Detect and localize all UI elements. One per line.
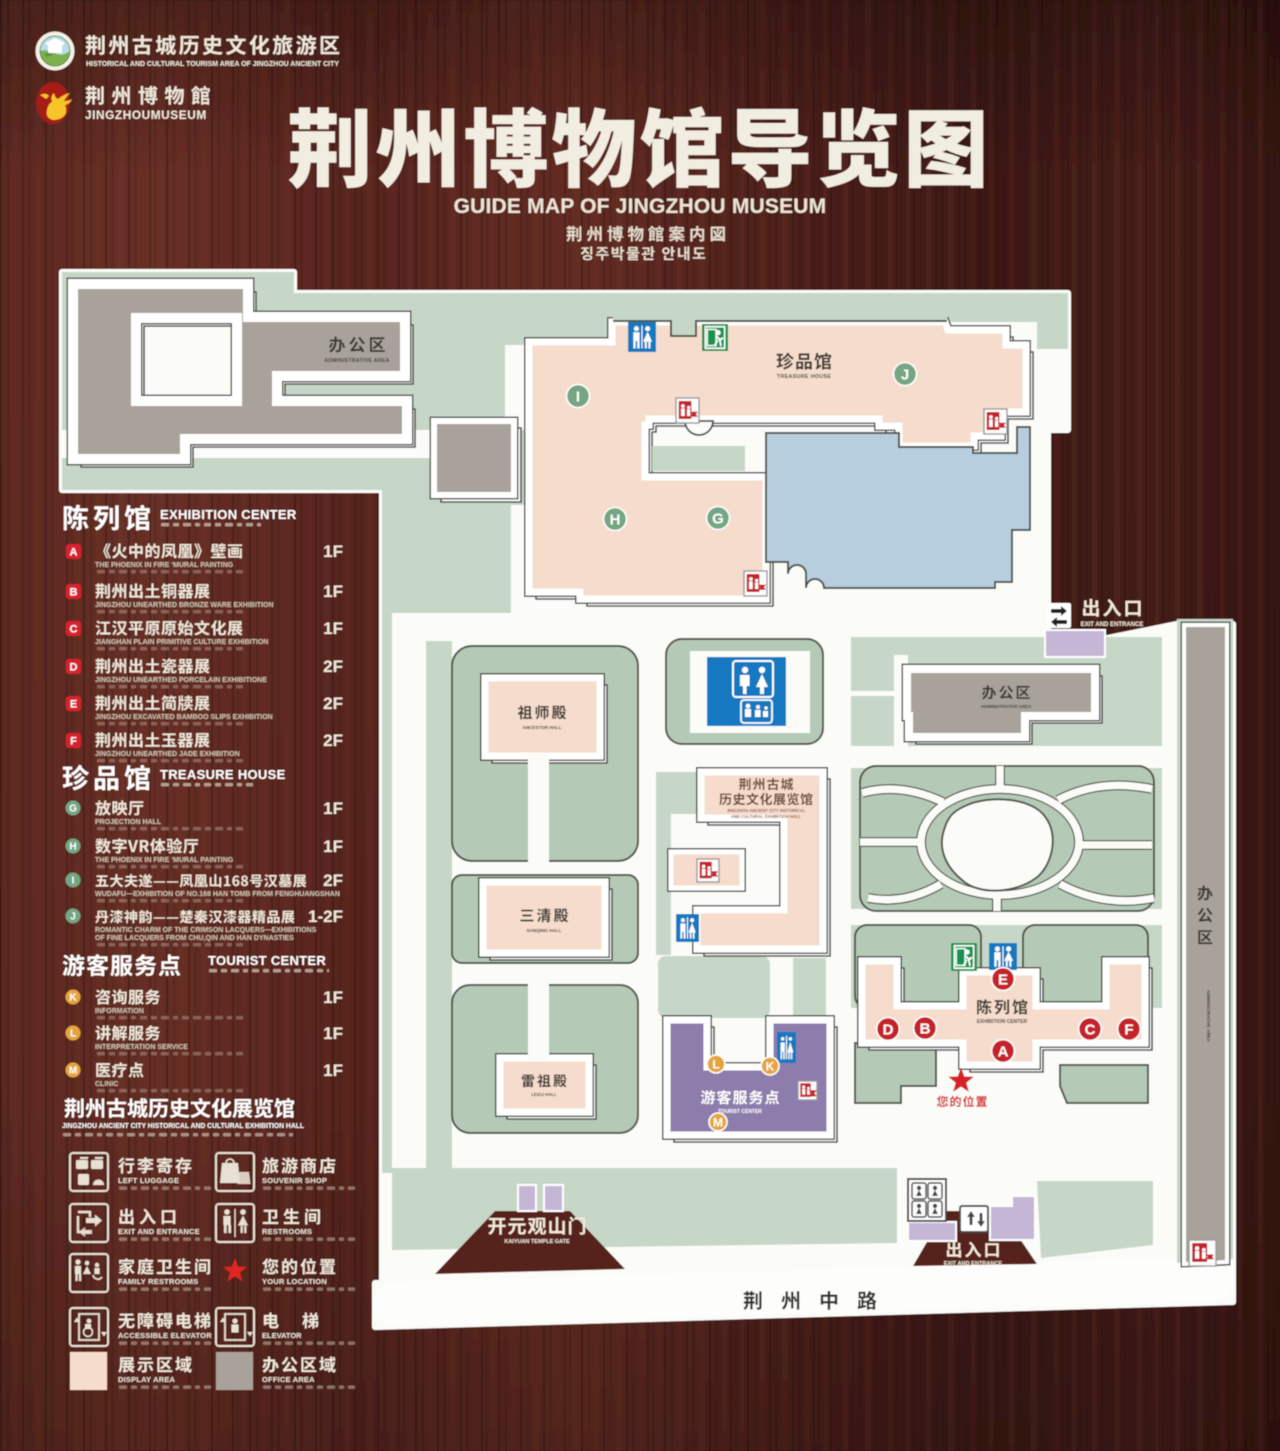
svg-text:1F: 1F [323, 988, 343, 1007]
svg-text:AND CULTURAL EXHIBITION HALL: AND CULTURAL EXHIBITION HALL [731, 814, 802, 819]
svg-text:LEIZU HALL: LEIZU HALL [531, 1092, 557, 1097]
svg-text:JINGZHOU ANCIENT CITY HISTORIC: JINGZHOU ANCIENT CITY HISTORICAL [727, 808, 806, 813]
svg-text:JINGZHOUMUSEUM: JINGZHOUMUSEUM [85, 108, 207, 122]
svg-text:GUIDE MAP OF JINGZHOU MUSEUM: GUIDE MAP OF JINGZHOU MUSEUM [454, 195, 827, 218]
svg-text:JINGZHOU UNEARTHED PORCELAIN E: JINGZHOU UNEARTHED PORCELAIN EXHIBITIONE [95, 677, 267, 684]
svg-text:HISTORICAL AND CULTURAL TOURIS: HISTORICAL AND CULTURAL TOURISM AREA OF … [86, 59, 339, 68]
svg-text:EXHIBITION CENTER: EXHIBITION CENTER [160, 507, 297, 522]
svg-text:2F: 2F [323, 731, 343, 750]
svg-text:EXHIBITION CENTER: EXHIBITION CENTER [977, 1019, 1028, 1025]
svg-text:EXIT AND ENTRANCE: EXIT AND ENTRANCE [1081, 622, 1144, 628]
svg-text:B: B [70, 586, 78, 598]
svg-text:D: D [883, 1021, 894, 1038]
svg-text:1F: 1F [323, 619, 343, 638]
svg-text:SOUVENIR SHOP: SOUVENIR SHOP [262, 1176, 327, 1185]
svg-text:FAMILY RESTROOMS: FAMILY RESTROOMS [118, 1277, 198, 1286]
svg-text:2F: 2F [323, 871, 343, 890]
svg-text:ACCESSIBLE ELEVATOR: ACCESSIBLE ELEVATOR [118, 1331, 212, 1340]
svg-text:A: A [998, 1043, 1009, 1060]
svg-text:INFORMATION: INFORMATION [95, 1008, 144, 1015]
svg-text:1F: 1F [323, 1061, 343, 1080]
svg-text:JINGZHOU UNEARTHED JADE EXHIBI: JINGZHOU UNEARTHED JADE EXHIBITION [95, 751, 240, 758]
svg-text:2F: 2F [323, 657, 343, 676]
svg-text:CLINIC: CLINIC [95, 1081, 118, 1088]
svg-text:THE PHOENIX IN FIRE ‘MURAL PAI: THE PHOENIX IN FIRE ‘MURAL PAINTING [95, 562, 234, 569]
svg-text:TOURIST CENTER: TOURIST CENTER [718, 1109, 762, 1115]
svg-text:F: F [1124, 1021, 1133, 1038]
svg-text:THE PHOENIX IN FIRE ‘MURAL PAI: THE PHOENIX IN FIRE ‘MURAL PAINTING [95, 857, 234, 864]
svg-text:1F: 1F [323, 837, 343, 856]
svg-text:L: L [712, 1057, 719, 1071]
svg-text:E: E [998, 971, 1008, 988]
svg-text:SANQING HALL: SANQING HALL [527, 928, 562, 933]
svg-text:OFFICE AREA: OFFICE AREA [262, 1375, 315, 1384]
svg-text:EXIT AND ENTRANCE: EXIT AND ENTRANCE [118, 1227, 200, 1236]
svg-text:JINGZHOU ANCIENT CITY HISTORIC: JINGZHOU ANCIENT CITY HISTORICAL AND CUL… [62, 1121, 304, 1130]
svg-text:LEFT LUGGAGE: LEFT LUGGAGE [118, 1176, 179, 1185]
svg-text:A: A [70, 546, 78, 558]
svg-text:ELEVATOR: ELEVATOR [262, 1331, 302, 1340]
svg-text:B: B [920, 1020, 931, 1037]
svg-text:1F: 1F [323, 1024, 343, 1043]
svg-text:KAIYUAN TEMPLE GATE: KAIYUAN TEMPLE GATE [504, 1239, 570, 1245]
svg-text:G: G [712, 510, 724, 527]
svg-text:EXIT AND ENTRANCE: EXIT AND ENTRANCE [944, 1261, 1003, 1267]
svg-text:M: M [713, 1115, 723, 1129]
svg-text:K: K [69, 993, 77, 1004]
svg-text:1F: 1F [323, 542, 343, 561]
svg-text:INTERPRETATION SERVICE: INTERPRETATION SERVICE [95, 1044, 188, 1051]
svg-text:1F: 1F [323, 799, 343, 818]
svg-text:F: F [70, 735, 77, 747]
svg-text:M: M [69, 1066, 77, 1077]
svg-text:K: K [766, 1059, 775, 1073]
svg-text:ADMINISTRATIVE AREA: ADMINISTRATIVE AREA [981, 704, 1032, 709]
svg-text:C: C [1085, 1021, 1096, 1038]
svg-text:JINGZHOU EXCAVATED BAMBOO SLIP: JINGZHOU EXCAVATED BAMBOO SLIPS EXHIBITI… [95, 714, 273, 721]
svg-text:PROJECTION HALL: PROJECTION HALL [95, 819, 162, 826]
svg-text:C: C [70, 623, 78, 635]
svg-text:L: L [70, 1029, 76, 1040]
svg-text:I: I [576, 388, 580, 405]
svg-text:H: H [610, 511, 621, 528]
svg-text:TOURIST CENTER: TOURIST CENTER [208, 953, 326, 968]
svg-text:YOUR LOCATION: YOUR LOCATION [262, 1277, 327, 1286]
svg-text:RESTROOMS: RESTROOMS [262, 1227, 312, 1236]
svg-text:J: J [70, 912, 76, 923]
svg-text:2F: 2F [323, 694, 343, 713]
svg-text:D: D [70, 661, 78, 673]
svg-text:I: I [72, 876, 75, 887]
svg-text:ADMINISTRATIVE AREA: ADMINISTRATIVE AREA [1206, 990, 1211, 1043]
svg-text:TREASURE HOUSE: TREASURE HOUSE [777, 374, 832, 380]
svg-text:TREASURE HOUSE: TREASURE HOUSE [160, 767, 286, 782]
svg-text:J: J [901, 366, 909, 383]
svg-text:1-2F: 1-2F [308, 907, 343, 926]
svg-text:E: E [70, 698, 77, 710]
svg-text:1F: 1F [323, 582, 343, 601]
svg-text:ROMANTIC CHARM OF THE CRIMSON: ROMANTIC CHARM OF THE CRIMSON LACQUERS—E… [95, 927, 317, 934]
svg-text:DISPLAY AREA: DISPLAY AREA [118, 1375, 176, 1384]
svg-text:WUDAFU—EXHIBITION OF NO.168 HA: WUDAFU—EXHIBITION OF NO.168 HAN TOMB FRO… [95, 891, 340, 898]
svg-text:JIANGHAN PLAIN PRIMITIVE CULTU: JIANGHAN PLAIN PRIMITIVE CULTURE EXHIBIT… [95, 639, 268, 646]
svg-text:ADMINISTRATIVE AREA: ADMINISTRATIVE AREA [324, 358, 389, 364]
svg-text:G: G [69, 804, 77, 815]
svg-text:OF FINE LACQUERS FROM CHU,QIN: OF FINE LACQUERS FROM CHU,QIN AND HAN DY… [95, 935, 294, 942]
svg-text:H: H [69, 842, 76, 853]
svg-text:ANCESTOR HALL: ANCESTOR HALL [522, 725, 561, 730]
svg-text:JINGZHOU UNEARTHED BRONZE WARE: JINGZHOU UNEARTHED BRONZE WARE EXHIBITIO… [95, 602, 274, 609]
